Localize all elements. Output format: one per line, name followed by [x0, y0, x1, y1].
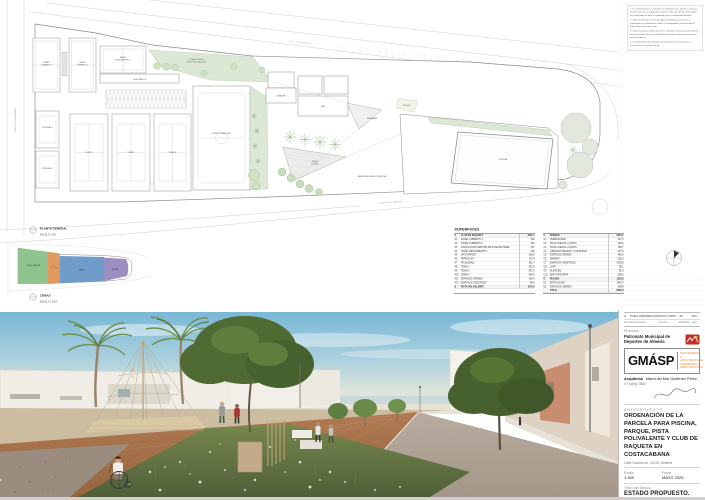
north-arrow-icon: [667, 251, 682, 266]
svg-text:CUBIERTO 2: CUBIERTO 2: [77, 65, 88, 67]
table-row: B PISTA POLIVALENTE 1076,0: [454, 285, 535, 289]
empty-revision-lines: [624, 280, 703, 305]
firm-logo-box: GMÁSP ENGINEERING & ARCHITECTURE INGENIE…: [624, 348, 700, 374]
firm-tagline-1: ENGINEERING & ARCHITECTURE: [680, 352, 703, 363]
table-row: TOTAL 8384,9: [543, 289, 624, 293]
label-almacen: ALMACÉN: [277, 95, 286, 98]
superficies-table-left: A CLUB DE RAQUETA 4001,1 A1 PÁDEL CUBIER…: [454, 234, 535, 294]
climbing-child: [131, 368, 135, 378]
perspective-render: [0, 312, 618, 497]
project-address: Calle Gacela s/n, 04120, Almería: [624, 461, 700, 465]
street-paseo: PASEO DE COSTACABANA: [14, 108, 17, 132]
superficies-block: SUPERFICIES A CLUB DE RAQUETA 4001,1 A1 …: [454, 228, 624, 302]
zones-diagram: CLUB DE RAQUETA PISTA POLIVALENTE PARQUE…: [8, 240, 152, 295]
project-title: ORDENACIÓN DE LA PARCELA PARA PISCINA, P…: [624, 413, 700, 459]
street-calle-sardina: CALLE SARDINA: [289, 40, 312, 46]
label-padel-cubierto-2: PÁDEL: [79, 61, 85, 64]
label-tenis-2: TENIS 2: [127, 152, 134, 154]
scale-value: 1:350: [624, 475, 662, 480]
superficies-title: SUPERFICIES: [455, 228, 625, 232]
svg-text:PLANTA GENERAL: PLANTA GENERAL: [40, 227, 68, 231]
svg-text:ESCALA 1:2000: ESCALA 1:2000: [40, 301, 58, 304]
drawing-sheet: PÁDEL CUBIERTO 1 PÁDEL CUBIERTO 2 PÁDEL …: [0, 0, 705, 500]
caption-planta-general: PLANTA GENERAL ESCALA 1:350: [30, 227, 68, 237]
svg-text:DESCUBIERTO 1: DESCUBIERTO 1: [115, 60, 130, 62]
firm-tagline-2: INGENIERÍA + ARQUITECTURA: [680, 363, 703, 370]
pista-polivalente: [193, 86, 250, 190]
architect-name: María del Mar Gutiérrez Pérez: [646, 377, 697, 381]
general-notes: 1. Las dimensiones se expresan en milíme…: [627, 5, 703, 57]
green-wedge: [249, 86, 269, 190]
svg-text:CUBIERTO 1: CUBIERTO 1: [41, 65, 52, 67]
caption-zonas: ZONAS ESCALA 1:2000: [30, 294, 58, 304]
label-pickleball-1: PICKLEBALL 1: [42, 126, 54, 129]
flower-symbol: [569, 146, 577, 154]
label-pista-polivalente: PISTA POLIVALENTE: [212, 132, 231, 135]
label-padel-cubierto-1: PÁDEL: [43, 61, 49, 64]
signature: [652, 387, 697, 402]
project-phase: ANTEPROYECTO: [624, 408, 700, 412]
scale-label: Escala: [624, 471, 662, 475]
superficies-table-right: C PARQUE 2054,1 C1 TERRAZA BAR 127,0 C2 …: [543, 234, 624, 294]
label-padel-descubierto: PÁDEL: [120, 56, 126, 59]
promotor-label: Promotor: [624, 329, 700, 333]
svg-text:ZONAS: ZONAS: [40, 294, 51, 298]
promotor-name: Patronato Municipal de Deportes de Almer…: [624, 334, 682, 345]
svg-text:ESCALA 1:350: ESCALA 1:350: [40, 234, 57, 237]
label-tenis-3: TENIS 3: [169, 152, 176, 154]
distant-pedestrian: [519, 417, 521, 425]
architect-license: n.º coleg. 0580: [624, 382, 700, 386]
title-block: A PARA APROBACIÓN MAYO 2025 JG MG Rev De…: [618, 310, 705, 500]
street-calle-punta: CALLE PUNTA SABINAR: [379, 200, 402, 204]
date-value: MAYO 2025: [662, 475, 700, 480]
promotor-logo-icon: [685, 334, 700, 345]
label-pickleball-2: PICKLEBALL 2: [42, 167, 54, 170]
notes-text: 1. Las dimensiones se expresan en milíme…: [627, 5, 703, 51]
label-vestuarios: VESTUARIOS: [133, 78, 147, 81]
label-tenis-1: TENIS 1: [85, 152, 92, 154]
firm-logo: GMÁSP: [628, 354, 674, 367]
date-label: Fecha: [662, 471, 700, 475]
label-piscina: PISCINA: [499, 158, 508, 161]
drawing-title-label: Título del Dibujo:: [624, 486, 700, 490]
revision-table: A PARA APROBACIÓN MAYO 2025 JG MG Rev De…: [624, 312, 700, 327]
architect-label: Arquitecta: [624, 377, 643, 381]
